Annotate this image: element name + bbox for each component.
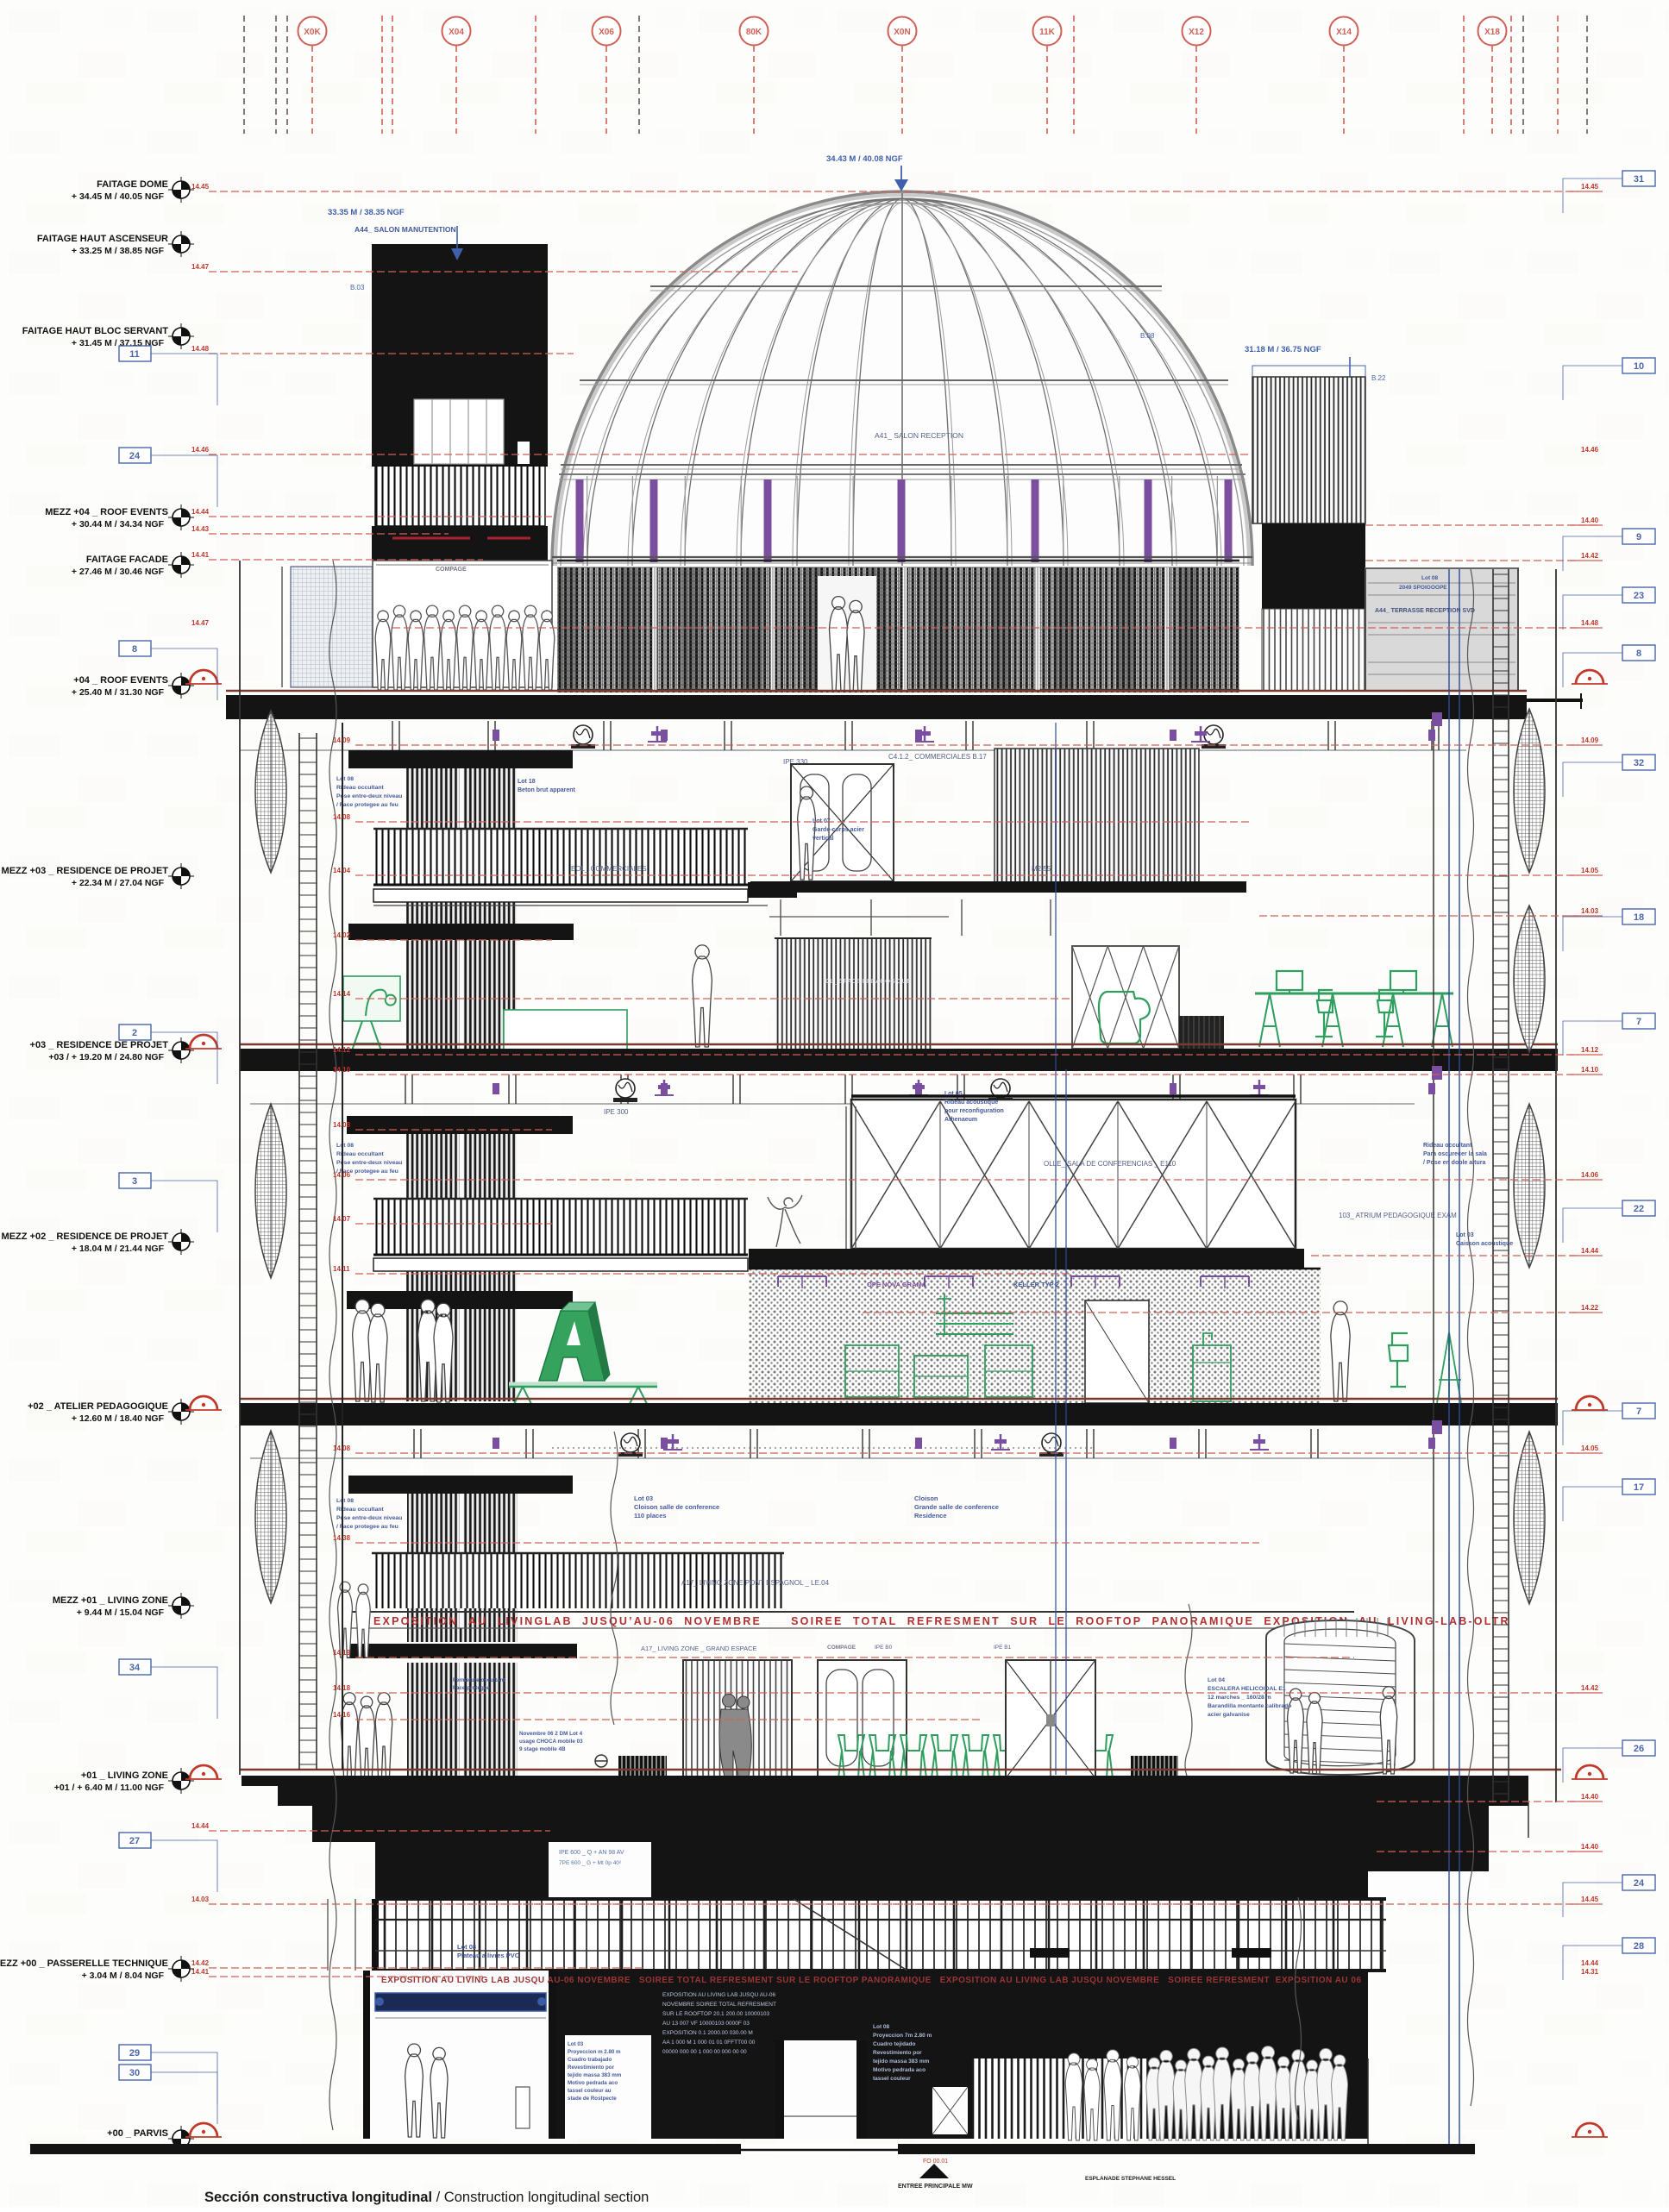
svg-text:Cloison: Cloison bbox=[914, 1495, 938, 1502]
svg-text:23: 23 bbox=[1634, 591, 1644, 601]
svg-text:Garde-corps acier: Garde-corps acier bbox=[813, 827, 864, 833]
svg-text:22: 22 bbox=[1634, 1204, 1644, 1214]
svg-text:+ 12.60 M / 18.40 NGF: + 12.60 M / 18.40 NGF bbox=[72, 1413, 165, 1424]
svg-text:Rideau occultant: Rideau occultant bbox=[336, 1151, 384, 1157]
svg-text:M2.55: M2.55 bbox=[1032, 865, 1051, 873]
svg-text:ICL_ SPACE PEDAGOGIQUE: ICL_ SPACE PEDAGOGIQUE bbox=[824, 977, 911, 985]
svg-text:14.44: 14.44 bbox=[191, 1822, 210, 1830]
svg-text:14.42: 14.42 bbox=[191, 1959, 210, 1967]
svg-text:+03 _ RESIDENCE DE PROJET: +03 _ RESIDENCE DE PROJET bbox=[30, 1040, 169, 1050]
svg-text:14.46: 14.46 bbox=[191, 446, 210, 454]
svg-text:14.44: 14.44 bbox=[1581, 1959, 1599, 1967]
svg-text:FAITAGE FACADE: FAITAGE FACADE bbox=[86, 555, 168, 565]
svg-text:/ Face protegee au feu: / Face protegee au feu bbox=[336, 1524, 398, 1530]
svg-text:Revestimiento por: Revestimiento por bbox=[873, 2050, 922, 2056]
svg-text:11: 11 bbox=[129, 349, 140, 360]
svg-text:Novembre 06 2 DM Lot 4: Novembre 06 2 DM Lot 4 bbox=[519, 1731, 583, 1737]
svg-text:14.45: 14.45 bbox=[1581, 183, 1599, 191]
svg-text:tassel couleur: tassel couleur bbox=[873, 2076, 911, 2082]
svg-text:Beton brut apparent: Beton brut apparent bbox=[518, 787, 576, 793]
svg-text:110 places: 110 places bbox=[634, 1512, 667, 1520]
svg-text:14.05: 14.05 bbox=[1581, 867, 1599, 874]
svg-text:Cuadro tejidado: Cuadro tejidado bbox=[873, 2041, 916, 2047]
svg-text:FAITAGE HAUT ASCENSEUR: FAITAGE HAUT ASCENSEUR bbox=[37, 234, 168, 244]
svg-text:26: 26 bbox=[1634, 1744, 1644, 1754]
svg-text:Proyeccion m 2.80 m: Proyeccion m 2.80 m bbox=[568, 2049, 621, 2055]
svg-text:28: 28 bbox=[1634, 1941, 1644, 1952]
svg-text:Motivo pedrada aco: Motivo pedrada aco bbox=[873, 2067, 925, 2073]
svg-text:14.40: 14.40 bbox=[1581, 517, 1599, 524]
svg-text:Para oscurecer la sala: Para oscurecer la sala bbox=[1423, 1151, 1487, 1157]
svg-text:ESPLANADE STEPHANE HESSEL: ESPLANADE STEPHANE HESSEL bbox=[1085, 2176, 1176, 2182]
svg-text:IPE B0: IPE B0 bbox=[875, 1645, 893, 1651]
svg-text:+00 _ PARVIS: +00 _ PARVIS bbox=[107, 2128, 168, 2139]
svg-text:Caisson acoustique: Caisson acoustique bbox=[1456, 1241, 1513, 1247]
svg-text:Lot 08: Lot 08 bbox=[873, 2024, 890, 2030]
svg-text:MEZZ +00 _ PASSERELLE TECHNIQU: MEZZ +00 _ PASSERELLE TECHNIQUE bbox=[0, 1958, 168, 1969]
svg-text:OLLE_ SALA DE CONFERENCIAS _ E: OLLE_ SALA DE CONFERENCIAS _ E110 bbox=[1044, 1160, 1176, 1168]
svg-text:14.41: 14.41 bbox=[191, 1968, 210, 1976]
svg-text:A17_ LIVING ZONE _ GRAND ESPAC: A17_ LIVING ZONE _ GRAND ESPACE bbox=[641, 1645, 757, 1652]
svg-text:Cuadro trabajado: Cuadro trabajado bbox=[568, 2057, 612, 2063]
svg-text:+02 _ ATELIER PEDAGOGIQUE: +02 _ ATELIER PEDAGOGIQUE bbox=[28, 1401, 168, 1412]
svg-text:14.40: 14.40 bbox=[1581, 1843, 1599, 1851]
svg-text:31: 31 bbox=[1634, 174, 1644, 185]
svg-text:14.46: 14.46 bbox=[1581, 446, 1599, 454]
svg-text:FAITAGE DOME: FAITAGE DOME bbox=[97, 179, 168, 190]
svg-text:A17_ LIVING ZONE PONT ESPAGNOL: A17_ LIVING ZONE PONT ESPAGNOL _ LE.04 bbox=[681, 1579, 830, 1587]
svg-text:Fermeture occultant: Fermeture occultant bbox=[453, 1677, 505, 1683]
svg-text:14.04: 14.04 bbox=[333, 867, 351, 874]
svg-text:14.42: 14.42 bbox=[1581, 1684, 1599, 1692]
svg-text:14.45: 14.45 bbox=[191, 183, 210, 191]
svg-text:+ 9.44 M / 15.04 NGF: + 9.44 M / 15.04 NGF bbox=[77, 1607, 165, 1618]
svg-text:14.09: 14.09 bbox=[333, 736, 351, 744]
svg-text:11K: 11K bbox=[1039, 28, 1056, 37]
svg-text:Lot 08: Lot 08 bbox=[457, 1943, 476, 1951]
svg-text:14.14: 14.14 bbox=[333, 990, 351, 998]
svg-text:Rideau occultant: Rideau occultant bbox=[1423, 1143, 1472, 1149]
svg-text:+ 33.25 M / 38.85 NGF: + 33.25 M / 38.85 NGF bbox=[72, 246, 165, 256]
svg-text:OPE NOVA GRAMA: OPE NOVA GRAMA bbox=[867, 1281, 927, 1288]
svg-text:31.18 M / 36.75 NGF: 31.18 M / 36.75 NGF bbox=[1245, 345, 1321, 354]
svg-text:Lot 18: Lot 18 bbox=[518, 779, 536, 785]
svg-text:+04 _ ROOF EVENTS: +04 _ ROOF EVENTS bbox=[73, 675, 168, 686]
svg-text:X14: X14 bbox=[1336, 28, 1352, 37]
svg-text:Revestimiento por: Revestimiento por bbox=[568, 2065, 615, 2071]
svg-text:8: 8 bbox=[1636, 649, 1641, 659]
svg-text:14.38: 14.38 bbox=[333, 1534, 351, 1542]
svg-text:stade de Rostpecte: stade de Rostpecte bbox=[568, 2096, 617, 2102]
svg-text:A41_ SALON RECEPTION: A41_ SALON RECEPTION bbox=[875, 431, 963, 440]
svg-text:14.48: 14.48 bbox=[191, 345, 210, 353]
svg-text:14.44: 14.44 bbox=[1581, 1247, 1599, 1255]
svg-text:14.07: 14.07 bbox=[333, 1215, 351, 1223]
svg-text:FAITAGE HAUT BLOC SERVANT: FAITAGE HAUT BLOC SERVANT bbox=[22, 326, 169, 336]
svg-text:7PE 600 _ G + Mt 0p 40²: 7PE 600 _ G + Mt 0p 40² bbox=[559, 1860, 622, 1866]
svg-text:Pose entre-deux niveau: Pose entre-deux niveau bbox=[336, 1160, 402, 1166]
svg-text:2: 2 bbox=[132, 1028, 137, 1038]
svg-text:14.48: 14.48 bbox=[1581, 619, 1599, 627]
svg-text:Proyeccion 7m 2.80 m: Proyeccion 7m 2.80 m bbox=[873, 2033, 932, 2039]
svg-text:acier galvanise: acier galvanise bbox=[1208, 1712, 1250, 1718]
svg-text:X18: X18 bbox=[1484, 28, 1500, 37]
svg-text:14.45: 14.45 bbox=[1581, 1896, 1599, 1903]
svg-text:14.10: 14.10 bbox=[333, 1066, 351, 1074]
svg-text:Lot 08: Lot 08 bbox=[336, 1498, 354, 1504]
svg-text:Pose entre-deux niveau: Pose entre-deux niveau bbox=[336, 1515, 402, 1521]
svg-text:COMPAGE: COMPAGE bbox=[436, 567, 467, 573]
svg-text:X0K: X0K bbox=[304, 28, 321, 37]
svg-text:14.06: 14.06 bbox=[1581, 1171, 1599, 1179]
svg-text:/ Pose en doble altura: / Pose en doble altura bbox=[1423, 1160, 1485, 1166]
svg-text:X06: X06 bbox=[599, 28, 614, 37]
svg-text:34.43 M / 40.08 NGF: 34.43 M / 40.08 NGF bbox=[826, 154, 903, 164]
svg-text:EXPOSITION 0.1 2000.00 030.00: EXPOSITION 0.1 2000.00 030.00 M bbox=[662, 2030, 753, 2036]
svg-text:/ Face protegee au feu: / Face protegee au feu bbox=[336, 802, 398, 808]
svg-text:14.43: 14.43 bbox=[191, 525, 210, 533]
svg-text:12 marches _ 160/28 m: 12 marches _ 160/28 m bbox=[1208, 1695, 1271, 1701]
svg-text:18: 18 bbox=[1634, 912, 1644, 923]
svg-text:Rideau acoustique: Rideau acoustique bbox=[944, 1100, 998, 1106]
svg-text:14.16: 14.16 bbox=[333, 1711, 351, 1719]
svg-text:Lot 03: Lot 03 bbox=[568, 2041, 584, 2047]
svg-text:14.18: 14.18 bbox=[333, 1684, 351, 1692]
svg-text:10: 10 bbox=[1634, 361, 1644, 372]
svg-text:2049 SPOIOOOPE: 2049 SPOIOOOPE bbox=[1399, 585, 1447, 591]
svg-text:9: 9 bbox=[1636, 532, 1641, 542]
svg-text:KELLER TYP 2: KELLER TYP 2 bbox=[1013, 1281, 1059, 1288]
svg-text:8: 8 bbox=[132, 644, 137, 655]
svg-text:9 stage mobile 4B: 9 stage mobile 4B bbox=[519, 1746, 566, 1752]
svg-text:Face protegee: Face protegee bbox=[453, 1685, 490, 1691]
svg-text:17: 17 bbox=[1634, 1482, 1644, 1493]
svg-text:usage CHOCA mobile 03: usage CHOCA mobile 03 bbox=[519, 1739, 583, 1745]
svg-text:24: 24 bbox=[1634, 1878, 1645, 1889]
svg-text:AA 1 000 M 1 000 01 01 0FFTT0: AA 1 000 M 1 000 01 01 0FFTT00 00 bbox=[662, 2040, 756, 2046]
svg-text:29: 29 bbox=[129, 2048, 140, 2058]
svg-text:14.08: 14.08 bbox=[333, 813, 351, 821]
svg-text:Residence: Residence bbox=[914, 1512, 947, 1520]
svg-text:Grande salle de conference: Grande salle de conference bbox=[914, 1503, 999, 1511]
svg-text:14.47: 14.47 bbox=[191, 263, 210, 271]
svg-text:00000 000 00 1 000 00 000 00: 00000 000 00 1 000 00 000 00 00 bbox=[662, 2049, 747, 2055]
svg-text:Pose entre-deux niveau: Pose entre-deux niveau bbox=[336, 793, 402, 799]
svg-text:ENTREE PRINCIPALE MW: ENTREE PRINCIPALE MW bbox=[898, 2184, 973, 2190]
svg-text:Barandilla montante calibrado: Barandilla montante calibrado bbox=[1208, 1703, 1291, 1709]
svg-text:Lot 08: Lot 08 bbox=[1421, 575, 1439, 581]
svg-text:34: 34 bbox=[129, 1663, 141, 1673]
svg-text:+ 30.44 M / 34.34 NGF: + 30.44 M / 34.34 NGF bbox=[72, 519, 165, 530]
svg-text:Lot 03: Lot 03 bbox=[634, 1495, 653, 1502]
svg-text:IPE B1: IPE B1 bbox=[994, 1645, 1012, 1651]
svg-text:24: 24 bbox=[129, 451, 141, 461]
svg-text:Lot 04: Lot 04 bbox=[1208, 1677, 1225, 1683]
svg-text:14.22: 14.22 bbox=[1581, 1304, 1599, 1312]
svg-text:80K: 80K bbox=[746, 28, 762, 37]
svg-text:14.08: 14.08 bbox=[333, 1121, 351, 1129]
svg-text:14.05: 14.05 bbox=[1581, 1444, 1599, 1452]
svg-text:14.44: 14.44 bbox=[191, 508, 210, 516]
svg-text:Lot 08: Lot 08 bbox=[336, 776, 354, 782]
svg-text:14.12: 14.12 bbox=[1581, 1046, 1599, 1054]
svg-text:14.03: 14.03 bbox=[191, 1896, 210, 1903]
svg-text:14.41: 14.41 bbox=[191, 551, 210, 559]
svg-text:tejido massa 383 mm: tejido massa 383 mm bbox=[873, 2058, 930, 2065]
svg-text:EOL_ COMMERCIALES: EOL_ COMMERCIALES bbox=[571, 865, 647, 873]
svg-text:C4.1.2_ COMMERCIALES B.17: C4.1.2_ COMMERCIALES B.17 bbox=[888, 753, 987, 761]
svg-text:B.08: B.08 bbox=[1140, 332, 1155, 340]
svg-text:Sección constructiva longitudi: Sección constructiva longitudinal / Cons… bbox=[204, 2190, 649, 2205]
svg-text:7: 7 bbox=[1636, 1017, 1641, 1027]
svg-text:+ 18.04 M / 21.44 NGF: + 18.04 M / 21.44 NGF bbox=[72, 1244, 165, 1254]
svg-text:14.08: 14.08 bbox=[333, 1444, 351, 1452]
svg-text:14.02: 14.02 bbox=[333, 931, 351, 939]
svg-text:+ 3.04 M / 8.04 NGF: + 3.04 M / 8.04 NGF bbox=[82, 1971, 165, 1981]
svg-text:MEZZ +04 _ ROOF EVENTS: MEZZ +04 _ ROOF EVENTS bbox=[45, 507, 168, 517]
svg-text:7: 7 bbox=[1636, 1407, 1641, 1417]
svg-text:Lot 08: Lot 08 bbox=[336, 1143, 354, 1149]
svg-text:14.47: 14.47 bbox=[191, 619, 210, 627]
svg-text:Motivo pedrada aco: Motivo pedrada aco bbox=[568, 2080, 618, 2086]
svg-text:ESCALERA HELICOIDAL E1: ESCALERA HELICOIDAL E1 bbox=[1208, 1686, 1286, 1692]
svg-text:Lot 03: Lot 03 bbox=[1456, 1232, 1474, 1238]
svg-text:B.22: B.22 bbox=[1371, 374, 1386, 382]
svg-text:14.10: 14.10 bbox=[1581, 1066, 1599, 1074]
svg-text:MEZZ +03 _ RESIDENCE DE PROJET: MEZZ +03 _ RESIDENCE DE PROJET bbox=[2, 866, 169, 876]
svg-text:X12: X12 bbox=[1189, 28, 1204, 37]
svg-text:A44_ SALON MANUTENTION: A44_ SALON MANUTENTION bbox=[355, 225, 456, 234]
svg-text:SUR LE ROOFTOP 20.1 200.00 10: SUR LE ROOFTOP 20.1 200.00 10000103 bbox=[662, 2011, 769, 2017]
svg-text:X04: X04 bbox=[449, 28, 464, 37]
svg-text:14.12: 14.12 bbox=[333, 1046, 351, 1054]
svg-text:14.09: 14.09 bbox=[1581, 736, 1599, 744]
svg-text:MEZZ +02 _ RESIDENCE DE PROJET: MEZZ +02 _ RESIDENCE DE PROJET bbox=[2, 1231, 169, 1242]
svg-text:14.03: 14.03 bbox=[1581, 907, 1599, 915]
svg-text:+ 25.40 M / 31.30 NGF: + 25.40 M / 31.30 NGF bbox=[72, 687, 165, 698]
svg-text:COMPAGE: COMPAGE bbox=[827, 1645, 856, 1651]
svg-text:3: 3 bbox=[132, 1176, 137, 1187]
svg-text:+01 _ LIVING ZONE: +01 _ LIVING ZONE bbox=[81, 1770, 168, 1781]
svg-text:14.11: 14.11 bbox=[333, 1265, 350, 1273]
svg-text:+ 34.45 M / 40.05 NGF: + 34.45 M / 40.05 NGF bbox=[72, 191, 165, 202]
svg-text:X0N: X0N bbox=[894, 28, 910, 37]
svg-text:14.42: 14.42 bbox=[1581, 552, 1599, 560]
svg-text:IPE 600 _ Q + AN 98 AV: IPE 600 _ Q + AN 98 AV bbox=[559, 1850, 624, 1856]
svg-text:+ 27.46 M / 30.46 NGF: + 27.46 M / 30.46 NGF bbox=[72, 567, 165, 577]
svg-text:NOVEMBRE SOIREE TOTAL REFRE: NOVEMBRE SOIREE TOTAL REFRESMENT bbox=[662, 2002, 776, 2008]
svg-text:Lot 05: Lot 05 bbox=[944, 1091, 963, 1097]
svg-text:Rideau occultant: Rideau occultant bbox=[336, 1507, 384, 1513]
svg-text:Athenaeum: Athenaeum bbox=[944, 1117, 977, 1123]
svg-text:EXPOSITION AU LIVING LAB JUSQU: EXPOSITION AU LIVING LAB JUSQU AU-06 NOV… bbox=[381, 1976, 1362, 1985]
svg-text:14.31: 14.31 bbox=[1581, 1968, 1599, 1976]
svg-text:27: 27 bbox=[129, 1836, 140, 1846]
svg-text:tassel couleur au: tassel couleur au bbox=[568, 2088, 612, 2094]
svg-text:Cloison salle de conference: Cloison salle de conference bbox=[634, 1503, 719, 1511]
svg-text:vertical: vertical bbox=[813, 836, 834, 842]
svg-text:Rideau occultant: Rideau occultant bbox=[336, 785, 384, 791]
svg-text:+01 / + 6.40 M / 11.00 NGF: +01 / + 6.40 M / 11.00 NGF bbox=[54, 1783, 165, 1793]
svg-text:tejido massa 383 mm: tejido massa 383 mm bbox=[568, 2072, 622, 2078]
svg-text:+ 22.34 M / 27.04 NGF: + 22.34 M / 27.04 NGF bbox=[72, 878, 165, 888]
svg-text:Plateau a livres PVC: Plateau a livres PVC bbox=[457, 1952, 520, 1959]
svg-text:103_ ATRIUM PEDAGOGIQUE EXAM: 103_ ATRIUM PEDAGOGIQUE EXAM bbox=[1339, 1212, 1457, 1219]
svg-text:IPE 300: IPE 300 bbox=[604, 1108, 629, 1116]
svg-text:B.03: B.03 bbox=[350, 284, 365, 291]
svg-text:+03 / + 19.20 M / 24.80 NGF: +03 / + 19.20 M / 24.80 NGF bbox=[48, 1052, 164, 1062]
svg-text:30: 30 bbox=[129, 2068, 140, 2078]
svg-text:14.19: 14.19 bbox=[333, 1649, 351, 1657]
svg-text:FO 00.01: FO 00.01 bbox=[923, 2159, 948, 2165]
svg-text:pour reconfiguration: pour reconfiguration bbox=[944, 1108, 1004, 1114]
svg-text:MEZZ +01 _ LIVING ZONE: MEZZ +01 _ LIVING ZONE bbox=[53, 1595, 168, 1606]
svg-text:14.06: 14.06 bbox=[333, 1171, 351, 1179]
svg-text:EXPOSITION AU LIVING LAB JUSQ: EXPOSITION AU LIVING LAB JUSQU AU-06 bbox=[662, 1992, 776, 1998]
svg-text:32: 32 bbox=[1634, 758, 1644, 768]
svg-text:33.35 M / 38.35 NGF: 33.35 M / 38.35 NGF bbox=[328, 208, 405, 217]
svg-text:AU 13 007 VF 10000103 0000F: AU 13 007 VF 10000103 0000F 03 bbox=[662, 2021, 750, 2027]
svg-text:14.40: 14.40 bbox=[1581, 1793, 1599, 1801]
